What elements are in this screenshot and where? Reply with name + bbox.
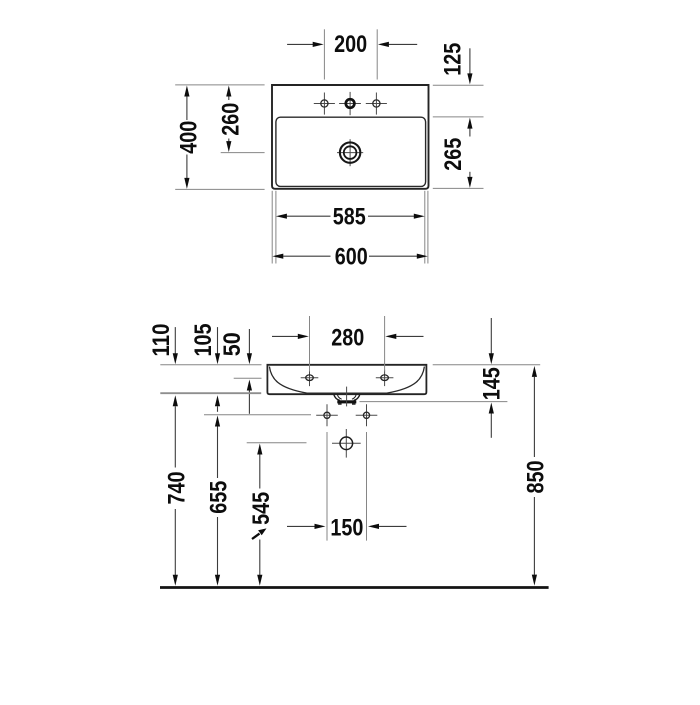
svg-text:50: 50 <box>219 332 246 356</box>
svg-text:200: 200 <box>334 31 367 58</box>
svg-text:740: 740 <box>163 472 190 505</box>
svg-text:585: 585 <box>333 204 366 231</box>
svg-text:655: 655 <box>206 481 233 514</box>
svg-text:110: 110 <box>148 324 175 357</box>
svg-text:150: 150 <box>330 515 363 542</box>
svg-text:105: 105 <box>190 324 217 357</box>
svg-text:145: 145 <box>478 367 505 400</box>
svg-text:600: 600 <box>335 243 368 270</box>
svg-text:280: 280 <box>331 325 364 352</box>
svg-text:545: 545 <box>248 492 275 525</box>
svg-text:850: 850 <box>523 461 550 494</box>
svg-text:265: 265 <box>440 138 467 171</box>
svg-text:400: 400 <box>176 121 203 154</box>
svg-text:125: 125 <box>440 43 467 76</box>
svg-text:260: 260 <box>218 103 245 136</box>
